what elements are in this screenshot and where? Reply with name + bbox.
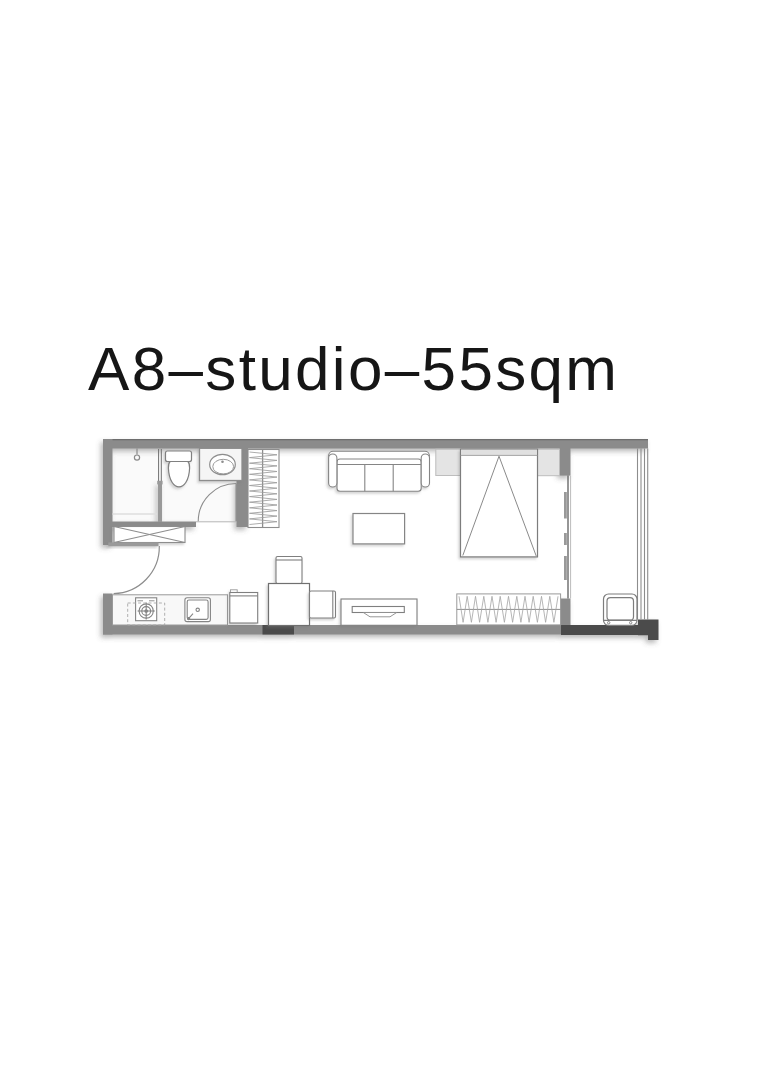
svg-text:A8–studio–55sqm: A8–studio–55sqm	[88, 334, 617, 403]
